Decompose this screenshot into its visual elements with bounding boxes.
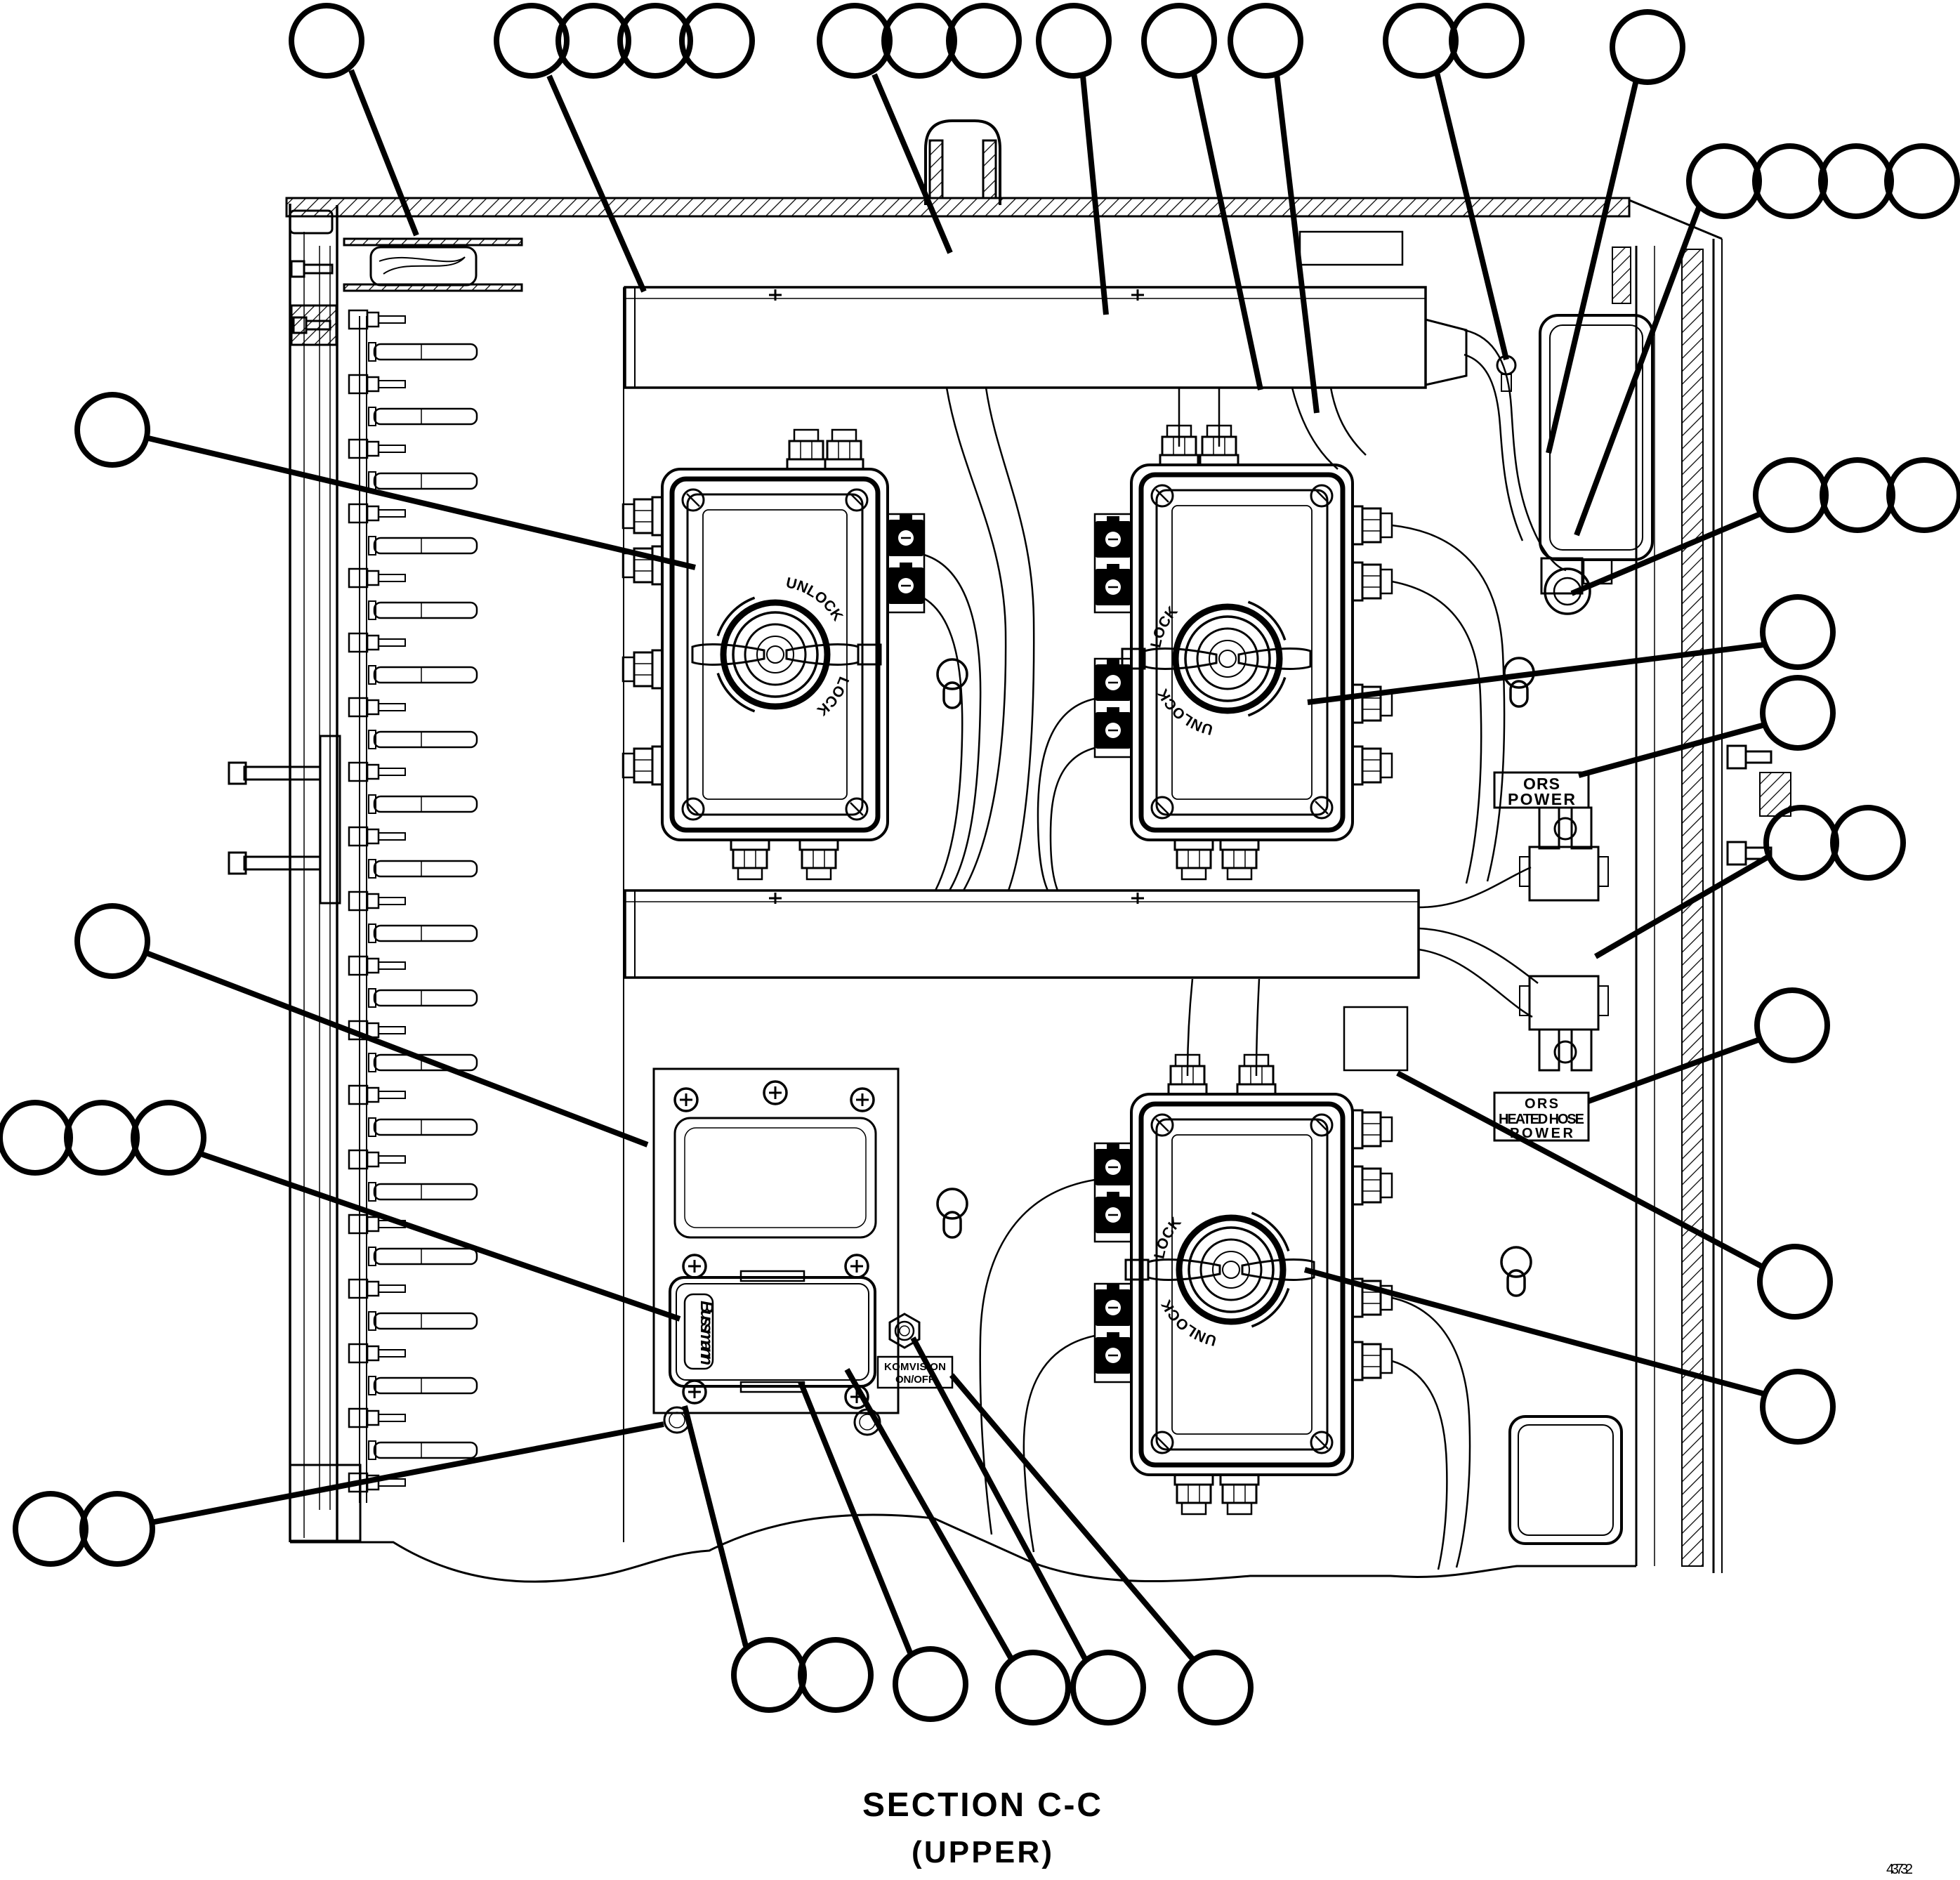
standoff-tube xyxy=(374,473,477,489)
bolt-block xyxy=(349,1150,367,1169)
cable-gland xyxy=(1353,563,1392,600)
callout-circle xyxy=(1887,146,1957,216)
callout-group xyxy=(77,906,647,1145)
callout-circle xyxy=(82,1494,152,1564)
latch-pointer xyxy=(1126,1260,1148,1280)
standoff-tube xyxy=(374,926,477,941)
corner-screw xyxy=(683,489,704,511)
standoff-tube xyxy=(374,603,477,618)
bolt-shaft xyxy=(379,510,405,517)
cable-gland xyxy=(1353,747,1392,784)
callout-group xyxy=(1596,808,1903,957)
gland-part xyxy=(1381,1117,1392,1141)
ors-power-receptacle xyxy=(1520,808,1608,900)
wiring-harness xyxy=(924,330,1566,1570)
latch-ring xyxy=(767,646,784,663)
bolt-block xyxy=(349,892,367,910)
gland-part xyxy=(623,754,634,777)
gland-part xyxy=(1200,455,1238,465)
corner-screw xyxy=(1311,485,1332,506)
junction-boxes xyxy=(662,465,1353,1475)
standoff-tube xyxy=(374,796,477,812)
cable-gland xyxy=(1353,1110,1392,1148)
left-studs xyxy=(229,736,340,903)
block-tab xyxy=(900,515,912,520)
gland-part xyxy=(800,840,838,850)
gland-part xyxy=(1362,1344,1381,1378)
fuse-brand-label: Bussmann xyxy=(697,1301,716,1365)
standoff-tube xyxy=(374,1313,477,1329)
latch-ring xyxy=(757,636,794,673)
top-edge-hatched-strip xyxy=(287,198,1629,216)
cable-gland xyxy=(623,650,662,688)
standoff-tube xyxy=(374,1442,477,1458)
gland-part xyxy=(634,499,652,533)
keyhole-tail xyxy=(944,1212,961,1237)
gland-part xyxy=(1353,1166,1362,1204)
callout-group xyxy=(1589,990,1827,1101)
gland-part xyxy=(802,850,836,868)
phillips-screw xyxy=(846,1255,868,1277)
ors-heated-hose-receptacle xyxy=(1520,976,1608,1070)
blank-plate-lower xyxy=(1344,1007,1407,1070)
gland-part xyxy=(1182,868,1206,879)
gland-part xyxy=(1182,1503,1206,1514)
bolt-head xyxy=(367,377,379,391)
leader-line xyxy=(1194,74,1261,390)
gland-part xyxy=(623,553,634,577)
terminal-block xyxy=(1095,707,1131,749)
gland-part xyxy=(1353,506,1362,544)
terminal-block xyxy=(1095,1192,1131,1233)
block-tab xyxy=(1107,564,1119,569)
latch-ring xyxy=(1197,629,1258,689)
leader-line xyxy=(1083,76,1106,315)
corner-screw xyxy=(1152,1432,1173,1453)
cable-gland xyxy=(1175,1475,1213,1514)
callout-group xyxy=(1386,6,1522,360)
lifting-handle xyxy=(926,121,1000,205)
gland-part xyxy=(1381,754,1392,777)
top-left-bracket xyxy=(290,211,336,345)
corner-screw xyxy=(1152,1115,1173,1136)
bolt-head xyxy=(367,1088,379,1102)
block-tab xyxy=(900,563,912,567)
latch-ring xyxy=(1223,1261,1239,1278)
rotary-latch: UNLOCKLOCK xyxy=(692,574,881,718)
gland-part xyxy=(1353,563,1362,600)
bolt-shaft xyxy=(379,833,405,840)
bolt-block xyxy=(349,763,367,781)
komvision-label-line2: ON/OFF xyxy=(895,1374,935,1386)
callout-circle xyxy=(1180,1652,1251,1723)
callout-circle xyxy=(291,6,362,76)
gland-part xyxy=(1177,850,1211,868)
bolt-shaft xyxy=(379,768,405,775)
callout-circle xyxy=(1756,460,1826,530)
callout-circle xyxy=(0,1103,70,1173)
callout-group xyxy=(1572,460,1959,593)
gland-part xyxy=(1353,685,1362,723)
keyhole-circle xyxy=(938,659,967,689)
bolt-shaft xyxy=(379,1027,405,1034)
gland-part xyxy=(807,868,831,879)
keyhole-slot xyxy=(1501,1247,1531,1296)
gland-part xyxy=(1362,1112,1381,1146)
callout-circle xyxy=(1763,678,1833,748)
squiggle-wire xyxy=(379,257,465,274)
phillips-screw xyxy=(675,1089,697,1111)
callout-circle xyxy=(1386,6,1456,76)
callout-circle xyxy=(77,906,147,976)
bolt-head xyxy=(367,765,379,779)
bolt-shaft xyxy=(379,445,405,452)
latch-ring xyxy=(1176,607,1280,711)
corner-screw xyxy=(1311,1115,1332,1136)
keyhole-tail xyxy=(1511,681,1527,706)
bolt-head xyxy=(367,636,379,650)
callout-circle xyxy=(67,1103,137,1173)
callout-circle xyxy=(15,1494,86,1564)
bolt-shaft xyxy=(379,574,405,581)
gland-part xyxy=(1228,1503,1251,1514)
bolt-head xyxy=(367,894,379,908)
standoff-tube xyxy=(374,990,477,1006)
standoff-tube xyxy=(374,538,477,553)
gland-part xyxy=(1228,868,1251,879)
caption-section: SECTION C-C xyxy=(862,1787,1101,1824)
latch-handle xyxy=(692,645,858,665)
terminal-block xyxy=(1095,1284,1131,1326)
corner-screw xyxy=(683,798,704,820)
gland-part xyxy=(794,430,818,441)
box-outer xyxy=(1131,465,1353,840)
bolt-head xyxy=(367,1217,379,1231)
cable-gland xyxy=(1221,840,1258,879)
terminal-block xyxy=(1095,1332,1131,1374)
bolt-block xyxy=(349,310,367,329)
bolt-head xyxy=(367,442,379,456)
phillips-screw xyxy=(683,1381,706,1403)
bolt-block xyxy=(349,957,367,975)
bolt-block xyxy=(349,1280,367,1298)
bolt-head xyxy=(367,506,379,520)
callout-group xyxy=(1039,6,1109,315)
block-tab xyxy=(1107,1332,1119,1337)
ors-heated-label-line2: HEATED HOSE xyxy=(1499,1112,1584,1127)
bolt-head xyxy=(367,571,379,585)
gland-part xyxy=(634,749,652,782)
standoff-tube xyxy=(374,344,477,360)
rotary-latch: LOCKUNLOCK xyxy=(1126,1213,1314,1348)
callout-group xyxy=(1579,678,1833,775)
callout-circle xyxy=(895,1649,966,1719)
bolt-shaft xyxy=(379,704,405,711)
callout-group xyxy=(1577,146,1957,535)
bolt-block xyxy=(349,1086,367,1104)
block-tab xyxy=(1107,1144,1119,1149)
gland-part xyxy=(652,546,662,584)
standoff-tube xyxy=(374,861,477,876)
standoff-tube xyxy=(374,1184,477,1199)
gland-part xyxy=(1362,1169,1381,1202)
callout-group xyxy=(1548,12,1683,453)
door-pocket-lower xyxy=(1510,1416,1622,1544)
gland-part xyxy=(1177,1485,1211,1503)
hole-inner xyxy=(669,1412,685,1428)
standoff-tube xyxy=(374,667,477,683)
callout-circle xyxy=(1760,1247,1830,1317)
gland-part xyxy=(1381,513,1392,537)
standoff-tube xyxy=(374,1378,477,1393)
cable-gland xyxy=(1221,1475,1258,1514)
cable-gland xyxy=(623,497,662,535)
bolt-block xyxy=(349,375,367,393)
callout-group xyxy=(1397,1073,1830,1317)
callout-circle xyxy=(1821,146,1891,216)
callout-circle xyxy=(1689,146,1759,216)
gland-part xyxy=(1362,565,1381,598)
leader-line xyxy=(1589,1039,1760,1101)
ors-power-label-line2: POWER xyxy=(1508,790,1575,808)
terminal-block xyxy=(888,563,924,604)
latch-handle xyxy=(1145,649,1310,669)
gland-part xyxy=(1237,1084,1275,1094)
callout-circle xyxy=(949,6,1019,76)
corner-screw xyxy=(846,489,867,511)
callout-circle xyxy=(1230,6,1301,76)
latch-ring xyxy=(1209,640,1246,677)
bolt-block xyxy=(349,569,367,587)
callout-circle xyxy=(1763,597,1833,667)
leader-line xyxy=(549,76,644,291)
gland-part xyxy=(733,850,767,868)
callout-circle xyxy=(1073,1652,1143,1723)
callout-group xyxy=(952,1375,1251,1723)
ors-heated-label-line1: ORS xyxy=(1525,1096,1558,1112)
callout-circle xyxy=(133,1103,204,1173)
phillips-screw xyxy=(683,1255,706,1277)
bolt-block xyxy=(349,1215,367,1233)
box-inner xyxy=(688,494,862,815)
latch-ring xyxy=(723,603,827,706)
keyhole-slot xyxy=(938,1189,967,1237)
terminal-block xyxy=(1095,516,1131,558)
bolt-block xyxy=(349,698,367,716)
bolt-block xyxy=(349,504,367,522)
standoff-tube xyxy=(374,1119,477,1135)
gland-part xyxy=(731,840,769,850)
cable-gland xyxy=(623,747,662,784)
callout-circle xyxy=(884,6,954,76)
cable-gland xyxy=(825,430,863,469)
latch-ring xyxy=(1213,1251,1249,1288)
gland-part xyxy=(825,459,863,469)
blank-plate-upper xyxy=(1300,232,1402,265)
box-inner xyxy=(1157,490,1327,815)
gland-part xyxy=(1381,1174,1392,1197)
bolt-head xyxy=(367,1152,379,1166)
gland-part xyxy=(1221,1475,1258,1485)
phillips-screw xyxy=(764,1082,787,1104)
bolt-head xyxy=(367,1282,379,1296)
bolt-shaft xyxy=(379,898,405,905)
callout-circle xyxy=(1039,6,1109,76)
bolt-head xyxy=(367,313,379,327)
callout-group xyxy=(77,395,695,567)
callout-circle xyxy=(1144,6,1214,76)
bolt-shaft xyxy=(379,1091,405,1098)
latch-ring xyxy=(1179,1218,1283,1322)
block-tab xyxy=(1107,707,1119,712)
leader-line xyxy=(151,1424,664,1523)
bolt-shaft xyxy=(379,1350,405,1357)
bolt-head xyxy=(367,959,379,973)
bolt-head xyxy=(367,829,379,843)
callout-circle xyxy=(1833,808,1903,878)
callout-circle xyxy=(1763,1372,1833,1442)
bolt-block xyxy=(349,440,367,458)
junction-box-2 xyxy=(1131,465,1353,840)
keyhole-tail xyxy=(1508,1270,1525,1296)
bolt-head xyxy=(367,1411,379,1425)
leader-line xyxy=(685,1406,746,1646)
callout-group xyxy=(685,1406,871,1710)
bolt-block xyxy=(349,633,367,652)
cable-gland xyxy=(800,840,838,879)
bolt-shaft xyxy=(379,1285,405,1292)
block-tab xyxy=(1107,659,1119,664)
gland-part xyxy=(738,868,762,879)
bolt-shaft xyxy=(379,316,405,323)
gland-part xyxy=(1353,1342,1362,1380)
callout-group xyxy=(496,6,752,291)
standoff-tube xyxy=(374,1249,477,1264)
gland-part xyxy=(1223,1485,1256,1503)
leader-line xyxy=(201,1154,680,1319)
callout-group xyxy=(913,1338,1143,1723)
phillips-screw xyxy=(851,1089,874,1111)
bolt-block xyxy=(349,827,367,846)
callout-circle xyxy=(1452,6,1522,76)
leader-line xyxy=(1277,74,1317,413)
corner-screw xyxy=(1152,797,1173,818)
corner-screw xyxy=(1311,1432,1332,1453)
keyhole-tail xyxy=(944,683,961,708)
callout-circle xyxy=(1612,12,1683,82)
bolt-head xyxy=(367,1346,379,1360)
callout-circle xyxy=(1755,146,1825,216)
bolt-block xyxy=(349,1409,367,1427)
box-outer xyxy=(662,469,888,840)
box-lid xyxy=(1172,506,1312,799)
latch-ring xyxy=(1219,650,1236,667)
latch-ring xyxy=(1201,1240,1261,1300)
text-labels: ORS POWER ORS HEATED HOSE POWER KOMVISIO… xyxy=(697,775,1913,1877)
cable-gland xyxy=(787,430,825,469)
keyhole-circle xyxy=(938,1189,967,1218)
middle-raceway xyxy=(625,890,1419,978)
box-rim xyxy=(1141,475,1343,830)
gland-part xyxy=(623,657,634,681)
latch-ring xyxy=(745,624,805,685)
komvision-label-line1: KOMVISION xyxy=(884,1361,946,1373)
callout-circle xyxy=(801,1640,871,1710)
gland-part xyxy=(832,430,856,441)
leader-line xyxy=(145,438,695,567)
cable-gland xyxy=(1353,1342,1392,1380)
doc-number: 43732 xyxy=(1886,1862,1913,1877)
upper-shelf xyxy=(344,239,522,291)
leader-line xyxy=(1397,1073,1764,1268)
callout-circle xyxy=(1889,460,1959,530)
callout-circle xyxy=(998,1652,1068,1723)
rotary-latch: LOCKUNLOCK xyxy=(1122,602,1310,737)
bolt-shaft xyxy=(379,962,405,969)
right-wall xyxy=(1612,200,1791,1573)
gland-part xyxy=(1381,1349,1392,1373)
gland-part xyxy=(1362,749,1381,782)
engineering-drawing-sheet: UNLOCKLOCKLOCKUNLOCKLOCKUNLOCK ORS POWER… xyxy=(0,0,1960,1880)
block-tab xyxy=(1107,1284,1119,1289)
bolt-shaft xyxy=(379,381,405,388)
gland-part xyxy=(787,459,825,469)
callout-circle xyxy=(1766,808,1836,878)
gland-part xyxy=(634,652,652,686)
junction-box-1 xyxy=(662,469,888,840)
gland-part xyxy=(652,650,662,688)
gland-part xyxy=(1362,508,1381,542)
terminal-block xyxy=(888,515,924,556)
gland-part xyxy=(652,497,662,535)
gland-part xyxy=(652,747,662,784)
callout-circle xyxy=(734,1640,804,1710)
leader-line xyxy=(1572,514,1760,593)
bolt-shaft xyxy=(379,1414,405,1421)
cable-gland xyxy=(1353,506,1392,544)
gland-part xyxy=(1175,1475,1213,1485)
gland-part xyxy=(1160,455,1198,465)
gland-part xyxy=(623,504,634,528)
terminal-block xyxy=(1095,564,1131,605)
gland-part xyxy=(789,441,823,459)
terminal-block xyxy=(1095,1144,1131,1185)
callout-group xyxy=(0,1103,680,1319)
leader-line xyxy=(145,952,647,1145)
gland-part xyxy=(1223,850,1256,868)
keyhole-slot xyxy=(1504,658,1534,706)
gland-part xyxy=(1353,1110,1362,1148)
latch-handle xyxy=(1148,1260,1314,1280)
cable-gland xyxy=(1353,1166,1392,1204)
cable-gland xyxy=(1175,840,1213,879)
standoff-tube xyxy=(374,409,477,424)
corner-screw xyxy=(1152,485,1173,506)
callout-circle xyxy=(1757,990,1827,1060)
bolt-head xyxy=(367,700,379,714)
bolt-block xyxy=(349,1344,367,1362)
terminal-block xyxy=(1095,659,1131,701)
gland-part xyxy=(1175,840,1213,850)
corner-screw xyxy=(846,798,867,820)
caption-upper: (UPPER) xyxy=(912,1835,1052,1869)
access-plate xyxy=(654,1069,898,1413)
standoff-tube xyxy=(374,732,477,747)
callout-circle xyxy=(820,6,890,76)
callout-circle xyxy=(1822,460,1893,530)
gland-part xyxy=(1353,747,1362,784)
bolt-shaft xyxy=(379,1156,405,1163)
